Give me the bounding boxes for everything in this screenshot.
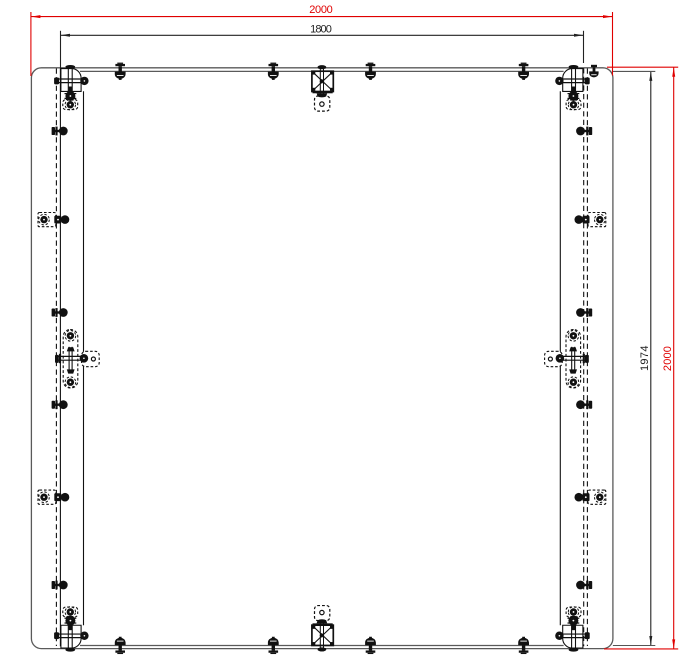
svg-text:1974: 1974 (639, 346, 651, 372)
svg-text:2000: 2000 (309, 4, 333, 16)
svg-text:1800: 1800 (310, 23, 332, 35)
svg-text:2000: 2000 (662, 346, 674, 371)
